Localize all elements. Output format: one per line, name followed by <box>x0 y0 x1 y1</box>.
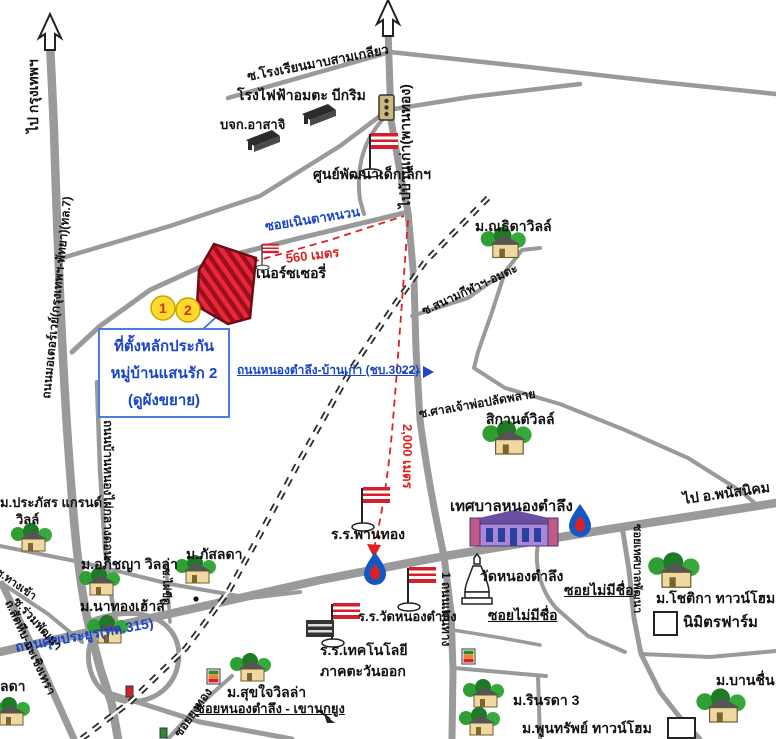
label-wat-nongtamlueng: วัดหนองตำลึง <box>480 569 563 584</box>
label-asahi: บจก.อาสาจิ <box>220 118 285 132</box>
north-arrow-bankao-icon <box>377 0 399 36</box>
site-parcel <box>197 244 256 324</box>
tree-house-icon <box>459 707 500 735</box>
label-main-road-1: 1 ถนนเมนทาง <box>439 572 452 646</box>
distance-line-2000m <box>367 220 408 558</box>
label-panthong-school: ร.ร.พานทอง <box>331 527 405 542</box>
seven-eleven-icon <box>207 669 220 684</box>
school-building-icon <box>306 620 334 637</box>
label-no-name-soi-1: ซอยไม่มีชื่อ <box>564 583 634 598</box>
label-prapasorn-2: วิลล์ <box>16 513 39 527</box>
flag-icon <box>352 487 390 531</box>
traffic-light-icon <box>379 95 394 120</box>
label-sikan-ville: สิกานต์วิลล์ <box>486 412 555 427</box>
site-marker-2-number: 2 <box>184 302 192 318</box>
east-branch-road <box>641 651 776 657</box>
label-to-bangkok: ไป กรุงเทพฯ <box>26 59 41 133</box>
tree-house-icon <box>230 653 271 681</box>
label-partial-lada: ลดา <box>0 679 26 694</box>
label-poonsap: ม.พูนทรัพย์ ทาวน์โฮม <box>522 721 652 736</box>
callout-line-1: ที่ตั้งหลักประกัน <box>114 334 214 358</box>
tree-house-icon <box>648 552 699 587</box>
label-tech-school-2: ภาคตะวันออก <box>320 664 406 679</box>
label-power-plant: โรงไฟฟ้าอมตะ บีกริม <box>237 88 366 103</box>
label-phatsalada: ม.ภัสลดา <box>186 547 242 562</box>
label-thetsaban-soi: ซอยเทศบาลพัฒนา <box>631 524 643 613</box>
label-nimit-farm: นิมิตรฟาร์ม <box>683 615 758 632</box>
tree-house-icon <box>0 697 30 725</box>
label-no-name-soi-2: ซอยไม่มีชื่อ <box>488 608 558 623</box>
label-nongphai-road: ถนนบ้านหนองไผ่กลางดอน <box>101 420 114 559</box>
callout-line-3: (ดูผังขยาย) <box>128 388 200 412</box>
label-sukjai: ม.สุขใจวิลล่า <box>227 685 306 700</box>
signal-box-icon <box>126 686 133 697</box>
factory-icon <box>302 104 336 126</box>
poi-dot <box>193 596 198 601</box>
seven-eleven-icon <box>462 649 475 664</box>
flag-icon <box>398 567 436 611</box>
label-municipality: เทศบาลหนองตำลึง <box>450 499 573 516</box>
label-child-center: ศูนย์พัฒนาเด็กเล็กฯ <box>313 167 431 182</box>
label-banchuen: ม.บานชื่น <box>716 673 775 688</box>
label-phai-khit-soi: ซ.ไผ่ขีด <box>160 568 172 605</box>
label-tech-school-1: ร.ร.เทคโนโลยี <box>320 643 408 658</box>
label-2000m: 2,000 เมตร <box>400 424 414 489</box>
no-name-soi-road-2 <box>453 630 540 645</box>
label-to-bankao: ไปบ้านเก่า(พานทอง) <box>398 84 413 208</box>
farm-square-icon <box>668 718 695 738</box>
label-soi-khao: ซอยหนองตำลึง - เขานกยูง <box>196 702 345 716</box>
label-rinrada: ม.รินรดา 3 <box>513 693 579 708</box>
tree-house-icon <box>463 679 504 707</box>
label-nathong: ม.นาทองเฮ้าส์ <box>80 599 165 614</box>
site-callout-box: ที่ตั้งหลักประกัน หมู่บ้านแสนรัก 2 (ดูผั… <box>98 328 230 418</box>
callout-line-2: หมู่บ้านแสนรัก 2 <box>111 361 218 385</box>
north-arrow-bangkok-icon <box>39 14 61 50</box>
factory-icon <box>246 130 280 152</box>
gas-station-drop-icon <box>364 552 386 585</box>
map-canvas: ที่ตั้งหลักประกัน หมู่บ้านแสนรัก 2 (ดูผั… <box>0 0 776 739</box>
label-road-3022: ถนนหนองตำลึง-บ้านเก่า (ชบ.3022) <box>237 364 419 377</box>
tree-house-icon <box>696 688 745 722</box>
label-nursery: เนอร์ซเซอรี่ <box>256 266 326 281</box>
site-marker-1-number: 1 <box>159 300 167 316</box>
farm-square-icon <box>654 612 677 635</box>
label-prapasorn-1: ม.ประภัสร แกรนด์ <box>0 496 102 510</box>
signal-box-icon <box>160 728 167 738</box>
label-thida-ville: ม.ณธิดาวิลล์ <box>475 219 552 234</box>
label-chotika: ม.โชติกา ทาวน์โฮม <box>656 591 775 606</box>
